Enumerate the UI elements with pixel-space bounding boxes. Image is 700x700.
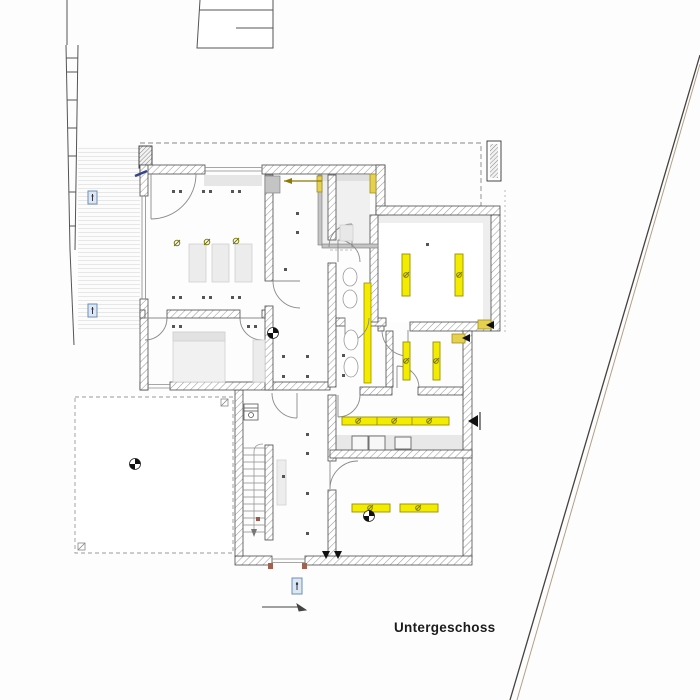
floorplan-drawing [0, 0, 700, 700]
terrace-hatch [78, 145, 140, 330]
survey-point-icon [130, 459, 141, 470]
door-arc [240, 318, 262, 340]
site-boundary-left [66, 0, 78, 345]
survey-point-icon [364, 511, 375, 522]
sink-icon [343, 290, 357, 308]
toilet-icon [343, 268, 357, 286]
door-arc [273, 281, 300, 308]
window-anchor-icon [268, 563, 307, 569]
stair-direction-arrow-icon [251, 529, 257, 537]
wardrobe [253, 340, 265, 382]
highlighted-wall [364, 283, 371, 383]
door-arc [338, 395, 360, 417]
garage-outline [197, 0, 273, 48]
shelf [189, 244, 206, 282]
roof-overhang-dashline [140, 143, 481, 206]
blue-plan-marker-icon [88, 191, 97, 204]
blue-plan-marker-icon [88, 304, 97, 317]
dimension-arrow [284, 178, 322, 184]
door-arc [151, 174, 196, 219]
property-lines-diagonal [510, 55, 700, 700]
floorplan-canvas: Untergeschoss [0, 0, 700, 700]
sideboard [204, 175, 262, 186]
kitchen-appliances [352, 436, 411, 450]
excavation-outline [75, 397, 233, 553]
page-title: Untergeschoss [394, 620, 495, 635]
north-reference-arrow [262, 604, 306, 611]
shelf [212, 244, 229, 282]
shelf [235, 244, 252, 282]
door-arc [272, 393, 297, 418]
appliance-icon [244, 404, 258, 420]
blue-plan-marker-icon [292, 578, 302, 594]
toilet-icon [344, 357, 358, 377]
toilet-icon [344, 330, 358, 350]
stairs [243, 444, 265, 537]
survey-point-icon [268, 328, 279, 339]
light-bar [400, 504, 438, 512]
door-arc [330, 461, 358, 489]
